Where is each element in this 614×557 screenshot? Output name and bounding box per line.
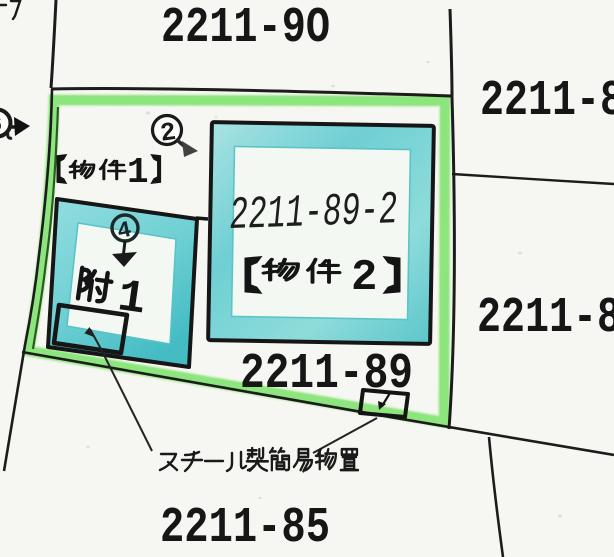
svg-text:2211-9O: 2211-9O <box>161 0 330 57</box>
svg-text:2211-85: 2211-85 <box>160 500 330 557</box>
svg-text:2211-89-2: 2211-89-2 <box>229 184 399 242</box>
svg-text:1: 1 <box>127 152 149 193</box>
svg-text:2211-8: 2211-8 <box>477 290 614 347</box>
svg-text:2: 2 <box>351 253 377 303</box>
svg-text:6: 6 <box>0 113 2 138</box>
svg-text:2211-89: 2211-89 <box>240 346 413 403</box>
svg-text:2211-8: 2211-8 <box>480 73 614 130</box>
